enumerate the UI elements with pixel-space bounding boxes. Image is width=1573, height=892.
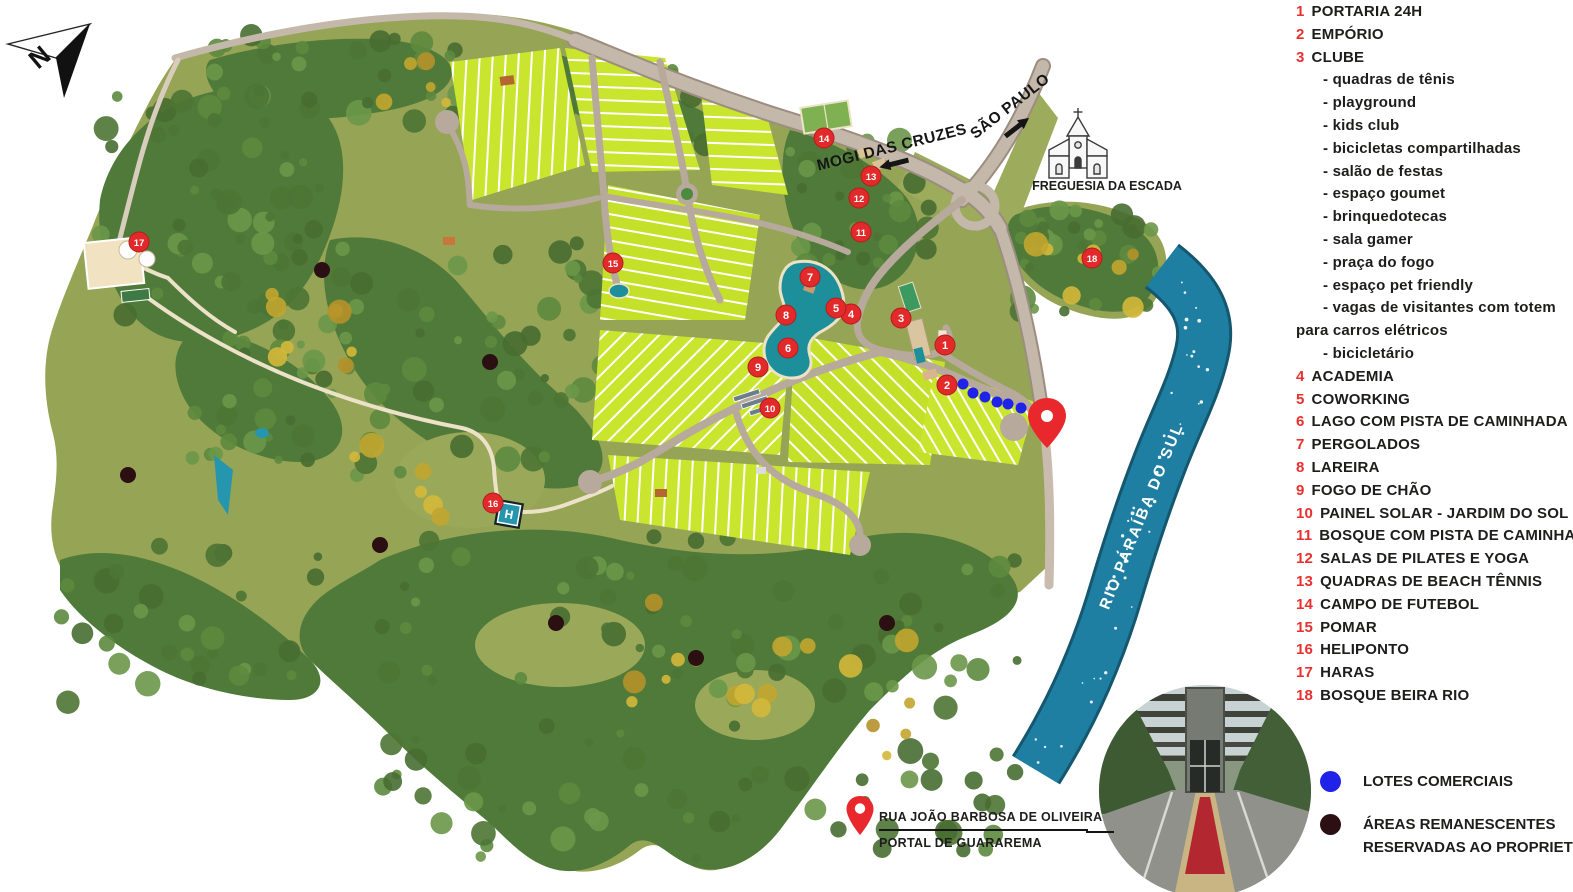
legend-subitem: - bicicletas compartilhadas: [1296, 138, 1570, 161]
svg-text:12: 12: [854, 194, 865, 205]
commercial-lot-dot: [958, 379, 969, 390]
legend-item-3: 3CLUBE: [1296, 47, 1570, 70]
svg-text:7: 7: [807, 272, 813, 284]
map-marker-11: 11: [851, 222, 871, 242]
svg-text:17: 17: [134, 238, 145, 249]
footer-legend-item-commercial-lots: LOTES COMERCIAIS: [1320, 770, 1573, 793]
church-label: FREGUESIA DA ESCADA: [1032, 179, 1182, 193]
legend-item-number: 9: [1296, 482, 1305, 499]
svg-text:9: 9: [755, 362, 761, 374]
legend-item-number: 5: [1296, 391, 1305, 408]
legend-item-label: PERGOLADOS: [1312, 436, 1421, 453]
legend-subitem: - kids club: [1296, 115, 1570, 138]
legend-item-label: QUADRAS DE BEACH TÊNNIS: [1320, 573, 1542, 590]
legend-item-label: ACADEMIA: [1312, 368, 1394, 385]
svg-text:4: 4: [848, 309, 855, 321]
legend-item-13: 13QUADRAS DE BEACH TÊNNIS: [1296, 571, 1570, 594]
building: [443, 237, 455, 245]
address-pin-icon: [845, 795, 875, 837]
legend-item-10: 10PAINEL SOLAR - JARDIM DO SOL: [1296, 503, 1570, 526]
inset-connector-line: [1086, 831, 1114, 833]
map-marker-18: 18: [1082, 248, 1102, 268]
owner-reserved-areas-dot-icon: [1320, 814, 1341, 835]
legend-item-label: LAREIRA: [1312, 459, 1380, 476]
commercial-lot-dot: [980, 392, 991, 403]
legend-item-label: EMPÓRIO: [1312, 26, 1384, 43]
legend-item-18: 18BOSQUE BEIRA RIO: [1296, 685, 1570, 708]
svg-text:10: 10: [765, 404, 776, 415]
legend-subitem: - playground: [1296, 92, 1570, 115]
legend-item-4: 4ACADEMIA: [1296, 366, 1570, 389]
footer-legend-item-owner-reserved-areas: ÁREAS REMANESCENTESRESERVADAS AO PROPRIE…: [1320, 813, 1573, 859]
building: [655, 489, 667, 497]
commercial-lot-dot: [968, 388, 979, 399]
legend-item-number: 7: [1296, 436, 1305, 453]
legend-item-number: 18: [1296, 687, 1313, 704]
svg-text:16: 16: [488, 499, 499, 510]
legend-panel: 1PORTARIA 24H2EMPÓRIO3CLUBE- quadras de …: [1296, 1, 1570, 708]
commercial-lot-dot: [1016, 403, 1027, 414]
legend-item-number: 8: [1296, 459, 1305, 476]
svg-text:6: 6: [785, 343, 791, 355]
legend-item-6: 6LAGO COM PISTA DE CAMINHADA: [1296, 411, 1570, 434]
legend-item-16: 16HELIPONTO: [1296, 639, 1570, 662]
legend-item-15: 15POMAR: [1296, 617, 1570, 640]
legend-item-label: HELIPONTO: [1320, 641, 1409, 658]
legend-item-number: 6: [1296, 413, 1305, 430]
footer-legend-label: ÁREAS REMANESCENTESRESERVADAS AO PROPRIE…: [1363, 813, 1573, 859]
map-marker-14: 14: [814, 128, 834, 148]
svg-text:1: 1: [942, 340, 948, 352]
haras-paddock: [121, 288, 150, 302]
commercial-lot-dot: [1003, 399, 1014, 410]
legend-item-number: 17: [1296, 664, 1313, 681]
legend-item-number: 12: [1296, 550, 1313, 567]
footer-legend: LOTES COMERCIAISÁREAS REMANESCENTESRESER…: [1320, 770, 1573, 879]
owner-reserved-dot: [548, 615, 564, 631]
legend-item-label: COWORKING: [1312, 391, 1410, 408]
legend-item-label: SALAS DE PILATES E YOGA: [1320, 550, 1529, 567]
map-marker-1: 1: [935, 335, 955, 355]
legend-subitem: - espaço pet friendly: [1296, 275, 1570, 298]
legend-item-number: 3: [1296, 49, 1305, 66]
legend-item-label: HARAS: [1320, 664, 1374, 681]
pond-pomar: [609, 284, 629, 298]
legend-item-number: 16: [1296, 641, 1313, 658]
map-marker-2: 2: [937, 375, 957, 395]
map-marker-12: 12: [849, 188, 869, 208]
north-arrow-icon: N: [8, 24, 90, 98]
svg-text:2: 2: [944, 380, 950, 392]
owner-reserved-dot: [120, 467, 136, 483]
map-marker-7: 7: [800, 267, 820, 287]
legend-item-label: PAINEL SOLAR - JARDIM DO SOL: [1320, 505, 1568, 522]
svg-text:3: 3: [898, 313, 904, 325]
legend-item-label: BOSQUE BEIRA RIO: [1320, 687, 1469, 704]
legend-item-9: 9FOGO DE CHÃO: [1296, 480, 1570, 503]
legend-item-number: 1: [1296, 3, 1305, 20]
legend-subitem: - quadras de tênis: [1296, 69, 1570, 92]
development-name: PORTAL DE GUARAREMA: [879, 836, 1088, 850]
legend-item-14: 14CAMPO DE FUTEBOL: [1296, 594, 1570, 617]
legend-item-12: 12SALAS DE PILATES E YOGA: [1296, 548, 1570, 571]
map-marker-5: 5: [826, 298, 846, 318]
svg-text:13: 13: [866, 172, 877, 183]
haras-round-pen: [139, 251, 155, 267]
entrance-photo-inset: [1099, 685, 1311, 892]
entrance-address: RUA JOÃO BARBOSA DE OLIVEIRA PORTAL DE G…: [879, 810, 1088, 850]
legend-item-number: 10: [1296, 505, 1313, 522]
legend-item-label: FOGO DE CHÃO: [1312, 482, 1432, 499]
owner-reserved-dot: [372, 537, 388, 553]
map-marker-8: 8: [776, 305, 796, 325]
legend-item-number: 13: [1296, 573, 1313, 590]
map-marker-16: 16: [483, 493, 503, 513]
legend-item-label: LAGO COM PISTA DE CAMINHADA: [1312, 413, 1568, 430]
commercial-lot-dot: [992, 397, 1003, 408]
legend-item-number: 11: [1296, 527, 1312, 544]
legend-item-number: 4: [1296, 368, 1305, 385]
owner-reserved-dot: [688, 650, 704, 666]
svg-text:11: 11: [856, 228, 867, 239]
svg-text:15: 15: [608, 259, 619, 270]
legend-subitem: para carros elétricos: [1296, 320, 1570, 343]
legend-item-label: POMAR: [1320, 619, 1377, 636]
svg-text:5: 5: [833, 303, 839, 315]
legend-item-label: CLUBE: [1312, 49, 1365, 66]
legend-item-number: 14: [1296, 596, 1313, 613]
masterplan-page: RIO PARAÍBA DO SUL: [0, 0, 1573, 892]
building: [756, 467, 766, 474]
legend-item-number: 2: [1296, 26, 1305, 43]
footer-legend-label: LOTES COMERCIAIS: [1363, 770, 1513, 793]
owner-reserved-dot: [314, 262, 330, 278]
legend-subitem: - brinquedotecas: [1296, 206, 1570, 229]
legend-item-5: 5COWORKING: [1296, 389, 1570, 412]
entrance-street: RUA JOÃO BARBOSA DE OLIVEIRA: [879, 810, 1088, 831]
legend-item-17: 17HARAS: [1296, 662, 1570, 685]
map-marker-3: 3: [891, 308, 911, 328]
legend-item-7: 7PERGOLADOS: [1296, 434, 1570, 457]
legend-item-2: 2EMPÓRIO: [1296, 24, 1570, 47]
legend-subitem: - praça do fogo: [1296, 252, 1570, 275]
legend-item-label: PORTARIA 24H: [1312, 3, 1423, 20]
legend-item-1: 1PORTARIA 24H: [1296, 1, 1570, 24]
map-marker-15: 15: [603, 253, 623, 273]
legend-subitem: - sala gamer: [1296, 229, 1570, 252]
commercial-lots-dot-icon: [1320, 771, 1341, 792]
svg-text:18: 18: [1087, 254, 1098, 265]
map-marker-6: 6: [778, 338, 798, 358]
legend-subitem: - salão de festas: [1296, 161, 1570, 184]
map-marker-9: 9: [748, 357, 768, 377]
pond-small: [255, 428, 269, 438]
map-marker-17: 17: [129, 232, 149, 252]
map-marker-10: 10: [760, 398, 780, 418]
legend-item-label: BOSQUE COM PISTA DE CAMINHADA: [1319, 527, 1573, 544]
svg-text:14: 14: [819, 134, 830, 145]
owner-reserved-dot: [879, 615, 895, 631]
svg-text:8: 8: [783, 310, 789, 322]
legend-subitem: - espaço goumet: [1296, 183, 1570, 206]
legend-item-8: 8LAREIRA: [1296, 457, 1570, 480]
legend-item-11: 11BOSQUE COM PISTA DE CAMINHADA: [1296, 525, 1570, 548]
map-marker-13: 13: [861, 166, 881, 186]
legend-subitem: - vagas de visitantes com totem: [1296, 297, 1570, 320]
owner-reserved-dot: [482, 354, 498, 370]
legend-subitem: - bicicletário: [1296, 343, 1570, 366]
legend-item-label: CAMPO DE FUTEBOL: [1320, 596, 1479, 613]
legend-item-number: 15: [1296, 619, 1313, 636]
